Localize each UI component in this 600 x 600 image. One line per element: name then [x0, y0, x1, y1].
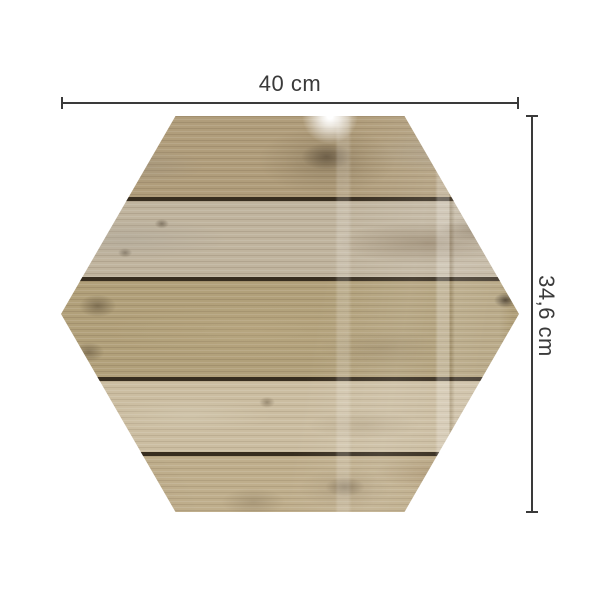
wood-planks [61, 116, 519, 512]
width-dimension-label: 40 cm [61, 71, 519, 97]
width-dimension-left-tick [61, 97, 63, 109]
wood-plank [61, 197, 519, 277]
hexagon-wood-board [61, 116, 519, 512]
wood-plank [61, 452, 519, 512]
product-dimension-image: 40 cm 34,6 cm [0, 0, 600, 600]
width-dimension-right-tick [517, 97, 519, 109]
wood-plank [61, 116, 519, 197]
width-dimension-line [61, 102, 519, 104]
height-dimension-top-tick [526, 115, 538, 117]
wood-plank [61, 277, 519, 377]
height-dimension-label: 34,6 cm [533, 270, 559, 362]
height-dimension-bottom-tick [526, 511, 538, 513]
wood-plank [61, 377, 519, 452]
